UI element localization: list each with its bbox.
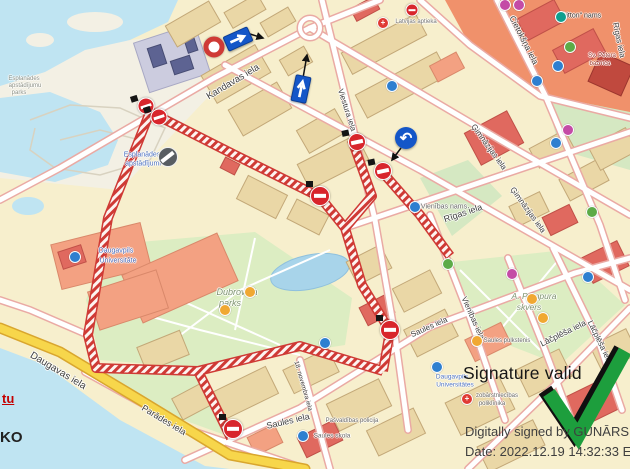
signature-valid-checkmark-icon	[0, 0, 630, 469]
signature-date-text: Date: 2022.12.19 14:32:33 EET	[465, 444, 630, 459]
signature-signed-by-text: Digitally signed by GUNĀRS HME	[465, 424, 630, 439]
map-canvas[interactable]: Kandavas ielaViestura ielaCietokšņa iela…	[0, 0, 630, 469]
digital-signature-overlay: Signature valid Digitally signed by GUNĀ…	[0, 0, 630, 469]
